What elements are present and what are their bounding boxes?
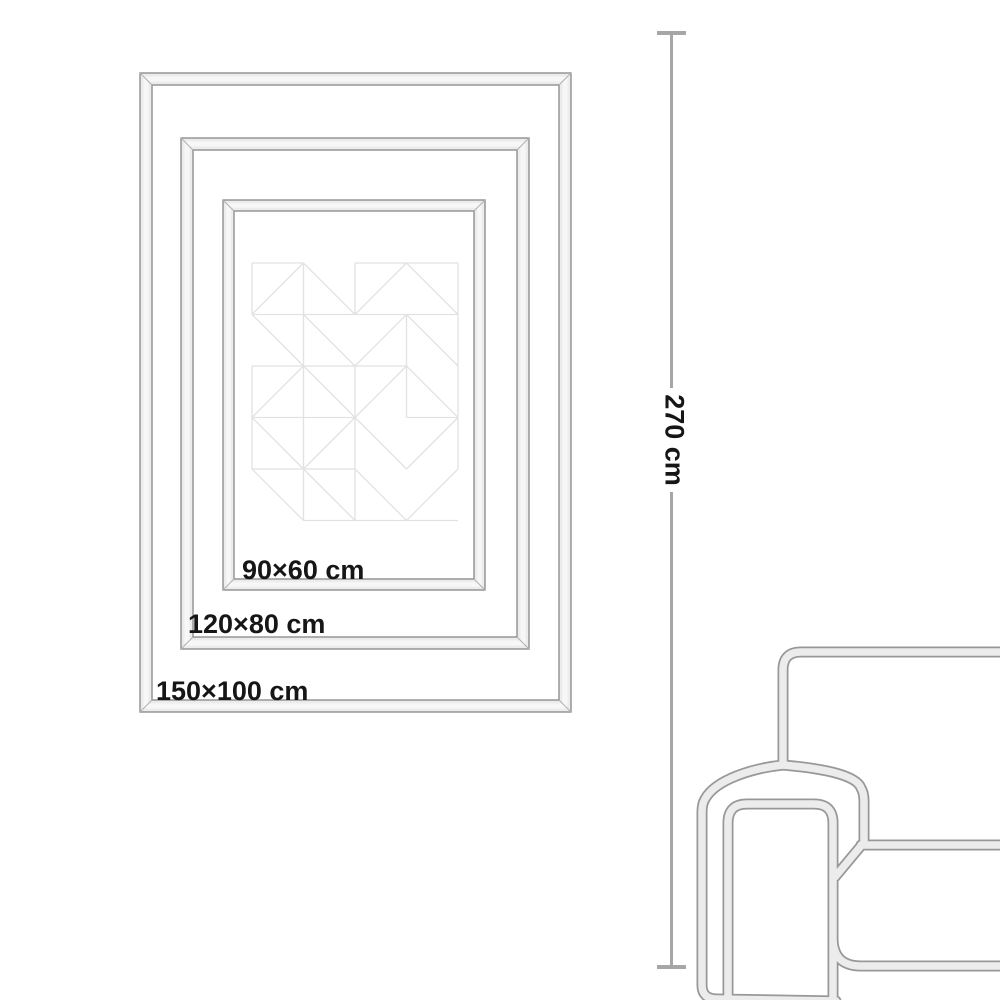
wall-height-label: 270 cm — [661, 394, 688, 486]
frame-size-label-150x100: 150×100 cm — [156, 678, 308, 705]
frame-size-label-90x60: 90×60 cm — [242, 557, 364, 584]
frame-size-label-120x80: 120×80 cm — [188, 611, 325, 638]
height-dimension-line — [657, 33, 686, 967]
sofa-fill-stroke — [702, 652, 1000, 1000]
size-diagram-canvas — [0, 0, 1000, 1000]
sofa-outline-stroke — [702, 652, 1000, 1000]
size-guide-page: { "size_guide": { "frames": [ { "size_la… — [0, 0, 1000, 1000]
sofa-illustration — [702, 652, 1000, 1000]
artwork-pattern — [252, 263, 458, 521]
frame-90x60-graphic — [223, 200, 485, 590]
